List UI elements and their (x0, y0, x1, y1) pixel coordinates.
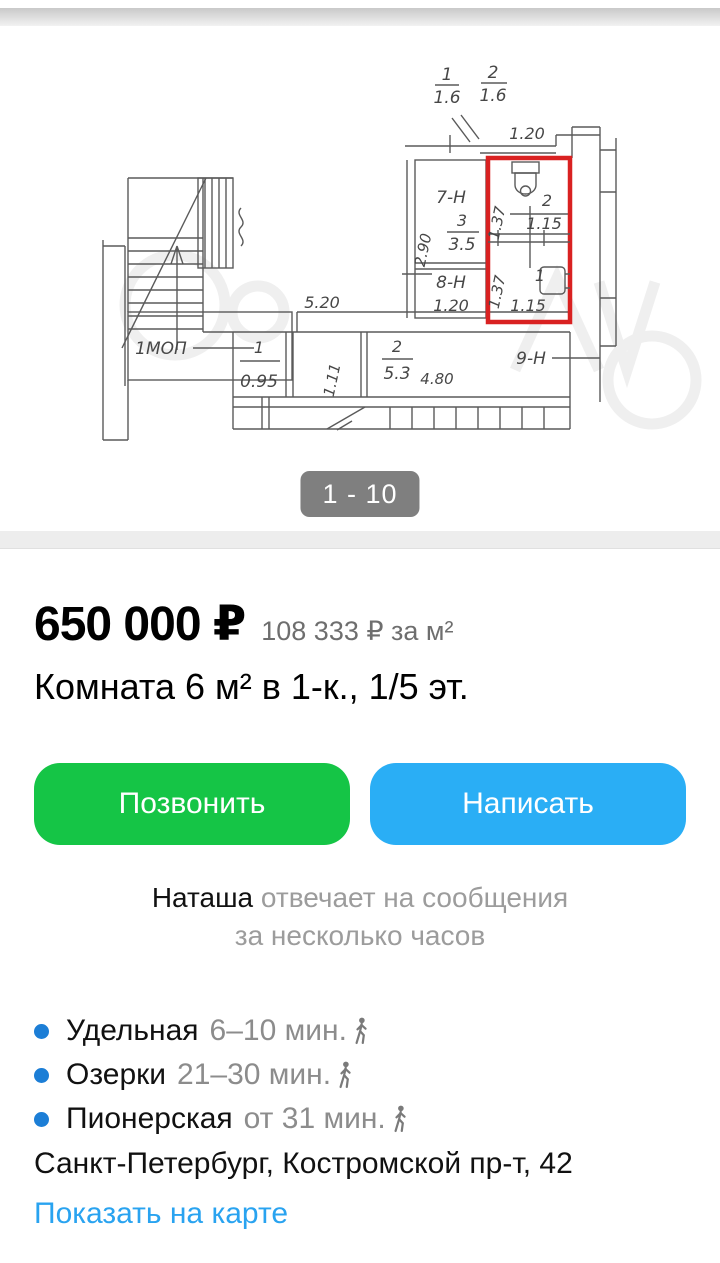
svg-text:2: 2 (542, 191, 552, 210)
seller-name: Наташа (152, 882, 253, 913)
metro-row: Пионерская от 31 мин. (34, 1101, 686, 1137)
metro-bullet-icon (34, 1112, 49, 1127)
action-buttons: Позвонить Написать (34, 763, 686, 845)
pedestrian-icon (334, 1061, 356, 1089)
toilet-icon (512, 162, 539, 196)
listing-title: Комната 6 м² в 1-к., 1/5 эт. (34, 665, 686, 709)
metro-station-name: Пионерская (66, 1102, 233, 1136)
pedestrian-icon (389, 1105, 411, 1133)
svg-text:0.95: 0.95 (240, 372, 278, 392)
seller-reply-line2: за несколько часов (235, 920, 486, 951)
metro-walk-time: от 31 мин. (244, 1102, 411, 1136)
svg-text:5.20: 5.20 (304, 293, 340, 312)
hatched-wall (233, 397, 570, 430)
metro-station-name: Удельная (66, 1014, 199, 1048)
seller-reply-line1: отвечает на сообщения (261, 882, 568, 913)
status-bar-spacer (0, 0, 720, 8)
show-on-map-link[interactable]: Показать на карте (34, 1197, 288, 1231)
metro-time-text: 21–30 мин. (177, 1058, 331, 1092)
svg-text:1МОП: 1МОП (135, 339, 187, 359)
metro-station-name: Озерки (66, 1058, 166, 1092)
svg-text:4.80: 4.80 (420, 370, 453, 388)
svg-text:7-Н: 7-Н (436, 188, 466, 208)
svg-text:1.15: 1.15 (526, 214, 562, 233)
svg-text:1.20: 1.20 (509, 124, 545, 143)
svg-text:9-Н: 9-Н (516, 349, 546, 369)
address: Санкт-Петербург, Костромской пр-т, 42 (34, 1145, 686, 1183)
watermark (125, 255, 696, 424)
svg-text:1.6: 1.6 (479, 86, 506, 106)
metro-time-text: от 31 мин. (244, 1102, 386, 1136)
metro-bullet-icon (34, 1068, 49, 1083)
metro-row: Удельная 6–10 мин. (34, 1013, 686, 1049)
seller-reply-info: Наташа отвечает на сообщения за нескольк… (34, 879, 686, 955)
svg-text:8-Н: 8-Н (436, 273, 466, 293)
metro-walk-time: 21–30 мин. (177, 1058, 356, 1092)
metro-time-text: 6–10 мин. (210, 1014, 347, 1048)
svg-text:5.3: 5.3 (383, 364, 410, 384)
pedestrian-icon (350, 1017, 372, 1045)
svg-text:1: 1 (254, 338, 264, 357)
section-separator (0, 531, 720, 549)
svg-text:1: 1 (535, 266, 545, 285)
svg-text:2: 2 (488, 63, 499, 83)
photo-gallery[interactable]: 1 1.6 2 1.6 1.20 7-Н 3 3.5 2.90 8-Н 1.20… (0, 26, 720, 531)
svg-text:1: 1 (442, 65, 453, 85)
svg-text:3: 3 (457, 211, 467, 230)
price: 650 000 ₽ (34, 601, 245, 649)
svg-text:2: 2 (392, 337, 402, 356)
price-row: 650 000 ₽ 108 333 ₽ за м² (34, 601, 686, 649)
metro-bullet-icon (34, 1024, 49, 1039)
svg-text:3.5: 3.5 (448, 235, 475, 255)
floorplan-image: 1 1.6 2 1.6 1.20 7-Н 3 3.5 2.90 8-Н 1.20… (0, 50, 720, 480)
svg-text:1.11: 1.11 (320, 362, 345, 398)
price-per-m2: 108 333 ₽ за м² (261, 616, 453, 647)
appbar-shadow (0, 8, 720, 26)
metro-walk-time: 6–10 мин. (210, 1014, 372, 1048)
metro-row: Озерки 21–30 мин. (34, 1057, 686, 1093)
photo-counter-badge: 1 - 10 (300, 471, 419, 517)
metro-list: Удельная 6–10 мин. Озерки 21–30 мин. (34, 1013, 686, 1137)
listing-details: 650 000 ₽ 108 333 ₽ за м² Комната 6 м² в… (0, 601, 720, 1231)
svg-text:1.15: 1.15 (510, 296, 546, 315)
write-button[interactable]: Написать (370, 763, 686, 845)
call-button[interactable]: Позвонить (34, 763, 350, 845)
svg-text:1.20: 1.20 (433, 296, 469, 315)
svg-text:1.6: 1.6 (433, 88, 460, 108)
